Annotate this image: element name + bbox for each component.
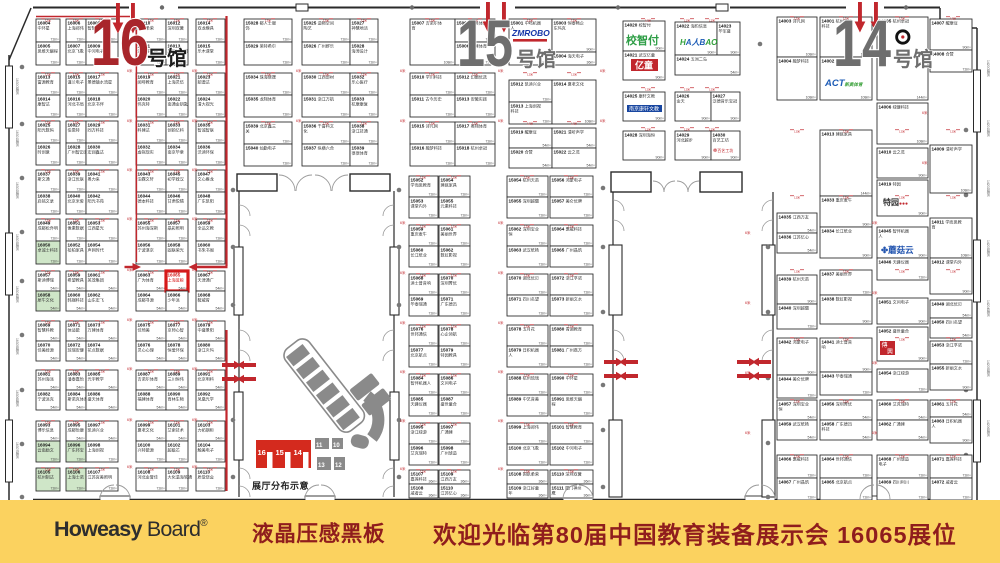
svg-text:72m²: 72m²	[51, 210, 60, 214]
svg-text:盛世童合: 盛世童合	[441, 400, 457, 406]
svg-text:54m²: 54m²	[216, 307, 225, 311]
svg-text:育: 育	[932, 223, 936, 229]
svg-text:12米: 12米	[45, 421, 51, 425]
svg-text:54m²: 54m²	[216, 357, 225, 361]
svg-text:12米: 12米	[45, 121, 51, 125]
svg-text:54m²: 54m²	[808, 229, 817, 233]
svg-text:54m²: 54m²	[808, 416, 817, 420]
svg-text:南京康轩文教: 南京康轩文教	[629, 106, 659, 113]
svg-text:6米: 6米	[127, 167, 133, 172]
svg-text:90m²: 90m²	[963, 46, 972, 50]
svg-text:72m²: 72m²	[77, 188, 86, 192]
svg-text:12米: 12米	[99, 219, 105, 223]
svg-text:特园教具: 特园教具	[441, 351, 457, 357]
svg-text:90m²: 90m²	[656, 156, 665, 160]
svg-text:神慧地活: 神慧地活	[352, 24, 368, 30]
svg-text:12米: 12米	[45, 19, 51, 23]
svg-text:潘泰嘉怡: 潘泰嘉怡	[68, 375, 84, 381]
svg-text:12米: 12米	[361, 122, 367, 126]
svg-text:人: 人	[879, 233, 883, 238]
svg-text:百艺工坊: 百艺工坊	[713, 136, 729, 142]
svg-text:72m²: 72m²	[369, 140, 378, 144]
svg-text:6米: 6米	[922, 110, 928, 115]
svg-text:72m²: 72m²	[216, 113, 225, 117]
svg-text:72m²: 72m²	[808, 496, 817, 500]
svg-text:14019 特园: 14019 特园	[879, 181, 901, 187]
svg-text:108m²: 108m²	[961, 189, 972, 193]
svg-text:12米: 12米	[207, 271, 213, 275]
svg-text:72m²: 72m²	[539, 363, 548, 367]
svg-text:72m²: 72m²	[539, 214, 548, 218]
svg-text:72m²: 72m²	[461, 214, 470, 218]
svg-text:72m²: 72m²	[109, 210, 118, 214]
svg-text:犀牛文化: 犀牛文化	[38, 296, 54, 302]
svg-text:15102 中河电子: 15102 中河电子	[552, 445, 582, 451]
svg-text:72m²: 72m²	[963, 68, 972, 72]
svg-text:艾索技术: 艾索技术	[168, 426, 184, 432]
svg-text:54m²: 54m²	[587, 164, 596, 168]
svg-text:90m²: 90m²	[731, 51, 740, 55]
svg-text:72m²: 72m²	[429, 214, 438, 218]
svg-text:15020 合赞: 15020 合赞	[511, 149, 533, 155]
svg-text:14009 清听声学: 14009 清听声学	[932, 146, 962, 152]
svg-text:15081 广州荔方: 15081 广州荔方	[552, 347, 582, 353]
svg-text:艾克瑞特: 艾克瑞特	[411, 449, 427, 455]
svg-text:晶彩照明: 晶彩照明	[168, 224, 184, 230]
svg-text:72m²: 72m²	[109, 237, 118, 241]
svg-text:14045 智伴机器: 14045 智伴机器	[879, 228, 909, 234]
svg-text:12米: 12米	[568, 423, 574, 427]
svg-text:15109 浙江好童: 15109 浙江好童	[509, 485, 539, 491]
svg-text:12米: 12米	[843, 400, 849, 404]
svg-text:12米: 12米	[361, 19, 367, 23]
svg-text:12米: 12米	[950, 130, 956, 134]
svg-text:中环星: 中环星	[38, 24, 50, 30]
svg-text:14003 诗凡网: 14003 诗凡网	[779, 18, 805, 24]
svg-text:90m²: 90m²	[808, 300, 817, 304]
svg-text:凤凰光学: 凤凰光学	[198, 395, 214, 401]
svg-text:6米: 6米	[872, 290, 878, 295]
svg-text:72m²: 72m²	[369, 91, 378, 95]
svg-text:72m²: 72m²	[179, 487, 188, 491]
svg-text:盛天体育: 盛天体育	[88, 395, 104, 401]
svg-text:72m²: 72m²	[77, 161, 86, 165]
svg-text:12米: 12米	[73, 121, 79, 125]
svg-text:15040 灿勤电子: 15040 灿勤电子	[246, 145, 276, 151]
svg-text:72m²: 72m²	[77, 260, 86, 264]
svg-text:号馆: 号馆	[516, 47, 556, 71]
svg-text:72m²: 72m²	[446, 162, 455, 166]
svg-text:14072 戚者云: 14072 戚者云	[932, 479, 958, 485]
svg-text:54m²: 54m²	[157, 386, 166, 390]
svg-text:12米: 12米	[323, 73, 329, 77]
svg-text:72m²: 72m²	[179, 161, 188, 165]
svg-text:72m²: 72m²	[179, 260, 188, 264]
svg-text:化: 化	[304, 127, 308, 133]
svg-text:12米: 12米	[420, 374, 426, 378]
svg-text:72m²: 72m²	[808, 474, 817, 478]
svg-text:90m²: 90m²	[702, 117, 711, 121]
svg-text:12米: 12米	[524, 274, 530, 278]
svg-text:人: 人	[509, 352, 513, 357]
svg-text:15110 深圳双簧: 15110 深圳双簧	[552, 471, 582, 477]
svg-text:36m²: 36m²	[584, 480, 593, 484]
svg-text:72m²: 72m²	[179, 210, 188, 214]
svg-text:12米: 12米	[451, 423, 457, 427]
svg-text:72m²: 72m²	[584, 263, 593, 267]
svg-text:6米: 6米	[498, 220, 504, 225]
svg-text:54m²: 54m²	[157, 307, 166, 311]
svg-text:固联荣光: 固联荣光	[168, 246, 184, 252]
svg-text:72m²: 72m²	[429, 242, 438, 246]
svg-text:6米: 6米	[498, 369, 504, 374]
svg-text:72m²: 72m²	[51, 113, 60, 117]
svg-text:6米: 6米	[192, 216, 198, 221]
svg-text:12米: 12米	[571, 122, 577, 126]
svg-text:12米: 12米	[709, 19, 715, 23]
svg-text:学而思教育: 学而思教育	[411, 181, 431, 187]
svg-text:成都怡康: 成都怡康	[68, 426, 84, 432]
svg-text:72m²: 72m²	[429, 440, 438, 444]
svg-text:72m²: 72m²	[539, 461, 548, 465]
svg-text:12米: 12米	[73, 468, 79, 472]
svg-text:12米: 12米	[899, 196, 905, 200]
svg-text:14055 新丽文水: 14055 新丽文水	[932, 365, 962, 371]
svg-text:6米: 6米	[745, 370, 751, 375]
svg-text:❁百艺工坊: ❁百艺工坊	[713, 147, 733, 154]
svg-text:15080 青湖教育: 15080 青湖教育	[552, 326, 582, 332]
svg-text:12米: 12米	[73, 421, 79, 425]
svg-text:90m²: 90m²	[702, 156, 711, 160]
svg-text:12米: 12米	[148, 121, 154, 125]
svg-text:12米: 12米	[174, 421, 180, 425]
svg-text:72m²: 72m²	[283, 61, 292, 65]
svg-text:72m²: 72m²	[109, 260, 118, 264]
svg-text:54m²: 54m²	[179, 287, 188, 291]
svg-text:54m²: 54m²	[179, 307, 188, 311]
svg-text:南京华章: 南京华章	[168, 148, 184, 154]
svg-text:72m²: 72m²	[461, 363, 470, 367]
svg-text:15073 新丽文水: 15073 新丽文水	[552, 296, 582, 302]
svg-text:14065 北京航点: 14065 北京航点	[822, 479, 852, 485]
svg-text:54m²: 54m²	[863, 436, 872, 440]
svg-text:伯恩特: 伯恩特	[68, 126, 80, 132]
svg-text:15055 深圳越疆: 15055 深圳越疆	[509, 198, 539, 204]
svg-text:12米: 12米	[45, 73, 51, 77]
svg-text:万建体育: 万建体育	[88, 326, 104, 332]
svg-text:54m²: 54m²	[216, 337, 225, 341]
svg-text:15057 美仑优牌: 15057 美仑优牌	[552, 198, 582, 204]
svg-text:72m²: 72m²	[863, 291, 872, 295]
svg-text:72m²: 72m²	[216, 61, 225, 65]
svg-text:鞍威胥: 鞍威胥	[198, 296, 210, 302]
svg-text:72m²: 72m²	[51, 161, 60, 165]
svg-text:54m²: 54m²	[109, 386, 118, 390]
svg-text:15007 吉诺尔体: 15007 吉诺尔体	[412, 20, 442, 26]
svg-text:12米: 12米	[174, 219, 180, 223]
svg-text:成都松乔明: 成都松乔明	[38, 224, 58, 230]
svg-text:72m²: 72m²	[157, 260, 166, 264]
svg-text:12米: 12米	[148, 468, 154, 472]
svg-text:54m²: 54m²	[51, 357, 60, 361]
svg-text:6米: 6米	[400, 320, 406, 325]
svg-text:15019 醒摩豆: 15019 醒摩豆	[511, 129, 537, 135]
svg-text:宁波湛京: 宁波湛京	[138, 246, 154, 252]
svg-text:54m²: 54m²	[863, 416, 872, 420]
svg-text:72m²: 72m²	[77, 38, 86, 42]
svg-text:10: 10	[333, 443, 340, 449]
svg-text:科建达: 科建达	[138, 126, 150, 132]
svg-text:12米: 12米	[568, 374, 574, 378]
svg-text:72m²: 72m²	[109, 91, 118, 95]
svg-text:12米: 12米	[99, 170, 105, 174]
svg-text:72m²: 72m²	[51, 260, 60, 264]
svg-text:6米: 6米	[127, 118, 133, 123]
svg-text:72m²: 72m²	[919, 474, 928, 478]
svg-text:6米: 6米	[498, 118, 504, 123]
svg-text:36m²: 36m²	[584, 494, 593, 498]
svg-text:14062 广通建: 14062 广通建	[879, 421, 905, 427]
svg-text:博乐信息: 博乐信息	[38, 426, 54, 432]
svg-text:14206服务: 14206服务	[986, 420, 990, 437]
svg-text:江西星光: 江西星光	[88, 224, 104, 230]
svg-text:108m²: 108m²	[585, 120, 596, 124]
svg-text:72m²: 72m²	[216, 188, 225, 192]
svg-text:12米: 12米	[451, 176, 457, 180]
svg-text:54m²: 54m²	[77, 337, 86, 341]
svg-text:14205服务: 14205服务	[986, 360, 990, 377]
svg-text:12米: 12米	[684, 19, 690, 23]
svg-text:72m²: 72m²	[461, 291, 470, 295]
svg-text:144m²: 144m²	[861, 192, 872, 196]
svg-text:36m²: 36m²	[587, 61, 596, 65]
svg-text:体适能: 体适能	[68, 326, 80, 332]
svg-text:江西万友: 江西万友	[441, 475, 457, 481]
svg-text:启铭文录: 启铭文录	[38, 197, 54, 203]
svg-text:15091 思维天编: 15091 思维天编	[552, 396, 582, 402]
svg-text:清大视光: 清大视光	[198, 100, 214, 106]
svg-text:河北越步: 河北越步	[677, 136, 693, 142]
svg-text:云南励文: 云南励文	[38, 446, 54, 452]
svg-text:12米: 12米	[568, 176, 574, 180]
svg-text:90m²: 90m²	[963, 290, 972, 294]
svg-text:上海郑伟: 上海郑伟	[68, 24, 84, 30]
svg-text:12米: 12米	[174, 271, 180, 275]
svg-text:长江纸业: 长江纸业	[411, 251, 427, 257]
svg-text:乐木课堂: 乐木课堂	[198, 47, 214, 53]
svg-text:泊霖文轩: 泊霖文轩	[138, 175, 154, 181]
svg-text:72m²: 72m²	[808, 325, 817, 329]
svg-text:90m²: 90m²	[863, 368, 872, 372]
svg-text:12米: 12米	[174, 321, 180, 325]
svg-text:6米: 6米	[498, 418, 504, 423]
svg-text:12米: 12米	[568, 470, 574, 474]
svg-text:6米: 6米	[192, 366, 198, 371]
svg-text:16307服务: 16307服务	[15, 442, 19, 459]
svg-text:书朱书阁: 书朱书阁	[198, 246, 214, 252]
svg-text:72m²: 72m²	[51, 91, 60, 95]
svg-text:16303服务: 16303服务	[15, 234, 19, 251]
svg-text:12米: 12米	[899, 270, 905, 274]
svg-text:12米: 12米	[420, 325, 426, 329]
svg-text:程: 程	[552, 400, 556, 406]
svg-text:6米: 6米	[498, 466, 504, 471]
svg-text:12米: 12米	[207, 219, 213, 223]
svg-text:6米: 6米	[745, 230, 751, 235]
svg-text:14051 文问电子: 14051 文问电子	[879, 299, 909, 305]
svg-text:16301服务: 16301服务	[15, 130, 19, 147]
svg-text:天峰仪器: 天峰仪器	[411, 400, 427, 406]
svg-text:创韵亿科: 创韵亿科	[168, 126, 184, 132]
svg-text:72m²: 72m²	[461, 412, 470, 416]
svg-text:14022 海豹信息: 14022 海豹信息	[677, 23, 707, 29]
svg-text:14028 深圳海恒: 14028 深圳海恒	[625, 132, 655, 138]
svg-text:72m²: 72m²	[341, 61, 350, 65]
svg-text:6米: 6米	[192, 317, 198, 322]
svg-text:12米: 12米	[207, 321, 213, 325]
svg-text:90m²: 90m²	[656, 117, 665, 121]
svg-text:鹰: 鹰	[552, 489, 556, 495]
svg-text:英茂集团: 英茂集团	[88, 276, 104, 282]
svg-text:乐心医疗: 乐心医疗	[352, 78, 368, 84]
svg-text:超级芯: 超级芯	[168, 446, 180, 452]
svg-text:36m²: 36m²	[461, 494, 470, 498]
svg-text:宁波派克: 宁波派克	[38, 395, 54, 401]
svg-text:12米: 12米	[451, 470, 457, 474]
svg-text:72m²: 72m²	[584, 440, 593, 444]
svg-text:12米: 12米	[899, 338, 905, 342]
svg-text:质受烧会: 质受烧会	[198, 473, 214, 479]
svg-text:15031 浙江万航: 15031 浙江万航	[304, 96, 334, 102]
svg-text:天津通广: 天津通广	[198, 276, 214, 282]
svg-text:河北书局: 河北书局	[68, 100, 84, 106]
svg-text:12米: 12米	[207, 19, 213, 23]
svg-text:54m²: 54m²	[587, 144, 596, 148]
svg-text:72m²: 72m²	[429, 461, 438, 465]
svg-text:6米: 6米	[400, 466, 406, 471]
svg-text:15022 云之苋: 15022 云之苋	[554, 149, 580, 155]
svg-text:14046 天峰仪器: 14046 天峰仪器	[879, 259, 909, 265]
svg-text:72m²: 72m²	[543, 98, 552, 102]
svg-text:6米: 6米	[600, 68, 606, 73]
svg-text:72m²: 72m²	[179, 188, 188, 192]
svg-text:54m²: 54m²	[963, 314, 972, 318]
svg-text:72m²: 72m²	[446, 91, 455, 95]
svg-text:15026 广州群乐: 15026 广州群乐	[304, 43, 334, 49]
svg-text:72m²: 72m²	[429, 291, 438, 295]
svg-text:108m²: 108m²	[806, 53, 817, 57]
svg-text:双龙模具: 双龙模具	[198, 24, 214, 30]
svg-text:72m²: 72m²	[216, 139, 225, 143]
svg-text:12米: 12米	[472, 122, 478, 126]
svg-text:12米: 12米	[524, 225, 530, 229]
svg-text:54m²: 54m²	[109, 437, 118, 441]
svg-text:展厅分布示意: 展厅分布示意	[252, 480, 309, 491]
svg-text:54m²: 54m²	[963, 413, 972, 417]
svg-text:15039 北京鑫三: 15039 北京鑫三	[246, 123, 276, 129]
svg-text:沃迪环保: 沃迪环保	[198, 148, 214, 154]
svg-text:中盛景阳: 中盛景阳	[198, 326, 214, 332]
svg-text:6米: 6米	[872, 430, 878, 435]
svg-text:72m²: 72m²	[461, 461, 470, 465]
svg-text:15078 五月花: 15078 五月花	[509, 326, 535, 332]
svg-text:72m²: 72m²	[486, 140, 495, 144]
svg-text:72m²: 72m²	[429, 342, 438, 346]
svg-text:15016 融梦科技: 15016 融梦科技	[412, 145, 442, 151]
svg-text:54m²: 54m²	[216, 437, 225, 441]
svg-text:36m²: 36m²	[461, 480, 470, 484]
svg-text:54m²: 54m²	[157, 406, 166, 410]
svg-text:72m²: 72m²	[109, 161, 118, 165]
svg-text:90m²: 90m²	[963, 439, 972, 443]
svg-text:72m²: 72m²	[157, 458, 166, 462]
svg-text:72m²: 72m²	[77, 61, 86, 65]
svg-text:54m²: 54m²	[109, 406, 118, 410]
svg-text:关: 关	[246, 127, 250, 133]
svg-text:15063 武汉纸杨: 15063 武汉纸杨	[509, 247, 539, 253]
svg-text:12米: 12米	[45, 468, 51, 472]
svg-text:54m²: 54m²	[109, 307, 118, 311]
svg-text:15100 北京飞象: 15100 北京飞象	[509, 445, 539, 451]
svg-text:72m²: 72m²	[963, 474, 972, 478]
svg-text:华军盛: 华军盛	[719, 27, 731, 33]
svg-text:72m²: 72m²	[863, 474, 872, 478]
svg-text:12米: 12米	[568, 274, 574, 278]
svg-text:90m²: 90m²	[731, 156, 740, 160]
svg-text:元素科技: 元素科技	[441, 202, 457, 208]
svg-text:54m²: 54m²	[51, 337, 60, 341]
svg-text:54m²: 54m²	[216, 406, 225, 410]
svg-text:90m²: 90m²	[963, 386, 972, 390]
svg-text:浙江优联: 浙江优联	[68, 175, 84, 181]
svg-text:15071 四川名望: 15071 四川名望	[509, 296, 539, 302]
svg-text:海涛设计: 海涛设计	[352, 47, 368, 53]
svg-text:琼瑞安健: 琼瑞安健	[68, 346, 84, 352]
svg-text:深圳菁优: 深圳菁优	[441, 279, 457, 285]
svg-text:12米: 12米	[899, 400, 905, 404]
svg-text:14049 湖北优贝: 14049 湖北优贝	[932, 301, 962, 307]
svg-text:6米: 6米	[127, 216, 133, 221]
svg-text:12米: 12米	[45, 370, 51, 374]
svg-text:12米: 12米	[99, 421, 105, 425]
svg-text:15036 千喜科文: 15036 千喜科文	[304, 123, 334, 129]
svg-text:72m²: 72m²	[109, 458, 118, 462]
svg-text:72m²: 72m²	[584, 412, 593, 416]
svg-text:12米: 12米	[524, 374, 530, 378]
svg-text:14063 日积机器: 14063 日积机器	[932, 418, 962, 424]
svg-text:上海灵伍: 上海灵伍	[168, 78, 184, 84]
svg-text:90m²: 90m²	[919, 254, 928, 258]
svg-text:6米: 6米	[400, 418, 406, 423]
svg-text:72m²: 72m²	[461, 391, 470, 395]
svg-text:72m²: 72m²	[216, 458, 225, 462]
svg-text:72m²: 72m²	[77, 91, 86, 95]
svg-text:响: 响	[822, 343, 826, 349]
svg-text:恒爱环保: 恒爱环保	[168, 346, 184, 352]
svg-text:72m²: 72m²	[341, 113, 350, 117]
svg-text:72m²: 72m²	[216, 487, 225, 491]
svg-text:苏州海深斯: 苏州海深斯	[138, 224, 158, 230]
svg-text:14038 数虹影视: 14038 数虹影视	[822, 296, 852, 302]
svg-text:广东凯阳: 广东凯阳	[198, 197, 214, 203]
svg-text:72m²: 72m²	[461, 193, 470, 197]
svg-text:興: 興	[887, 348, 893, 356]
svg-text:12: 12	[335, 463, 342, 469]
svg-text:16304服务: 16304服务	[15, 286, 19, 303]
svg-text:6米: 6米	[127, 267, 133, 272]
svg-text:72m²: 72m²	[77, 210, 86, 214]
svg-text:12米: 12米	[99, 370, 105, 374]
